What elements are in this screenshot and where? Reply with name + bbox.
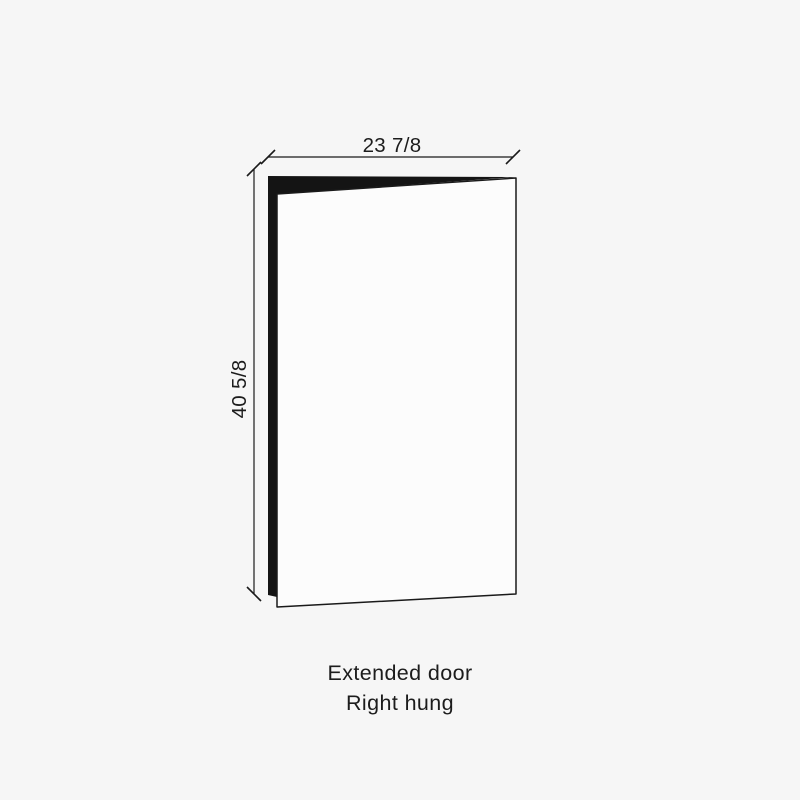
height-dimension-label: 40 5/8: [228, 360, 251, 419]
caption-hinge-side: Right hung: [0, 688, 800, 718]
diagram-caption: Extended door Right hung: [0, 658, 800, 718]
door-diagram: 23 7/8 40 5/8 Extended door Right hung: [0, 0, 800, 800]
door-drawing: [268, 176, 516, 607]
width-dimension: 23 7/8: [261, 134, 520, 164]
height-dimension: 40 5/8: [228, 162, 261, 601]
door-front-panel: [277, 178, 516, 607]
caption-door-type: Extended door: [0, 658, 800, 688]
width-dimension-label: 23 7/8: [363, 134, 422, 157]
